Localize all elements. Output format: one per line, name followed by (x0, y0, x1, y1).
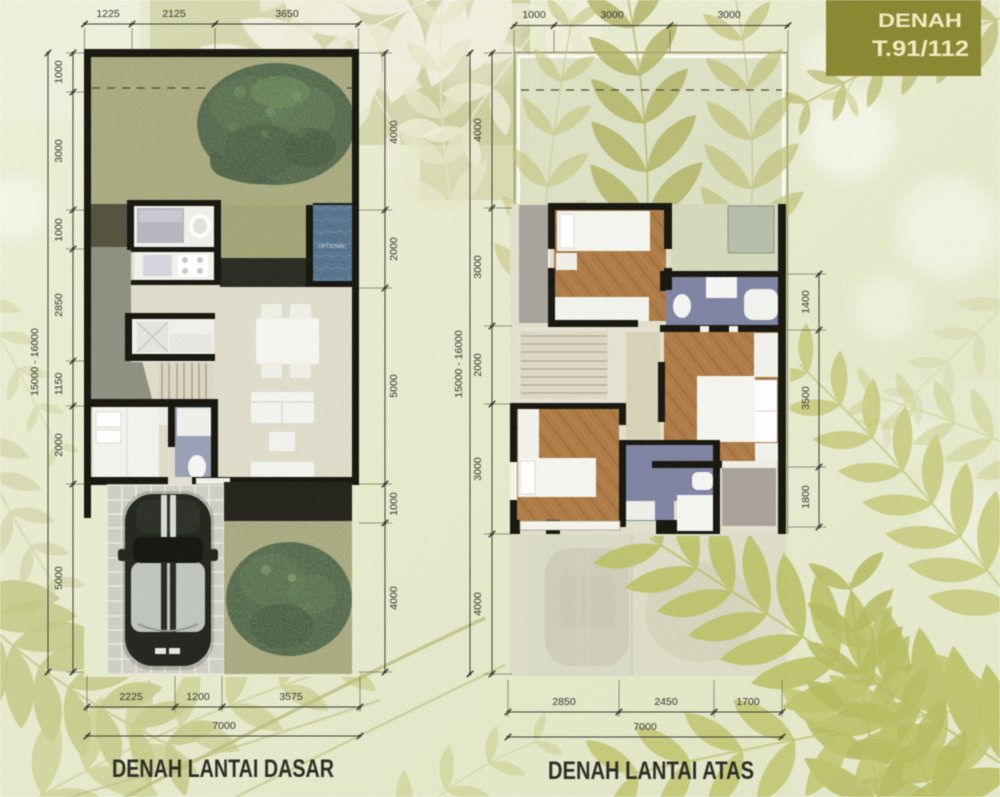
svg-text:DENAH LANTAI DASAR: DENAH LANTAI DASAR (112, 755, 334, 783)
svg-text:DENAH LANTAI ATAS: DENAH LANTAI ATAS (548, 757, 754, 785)
